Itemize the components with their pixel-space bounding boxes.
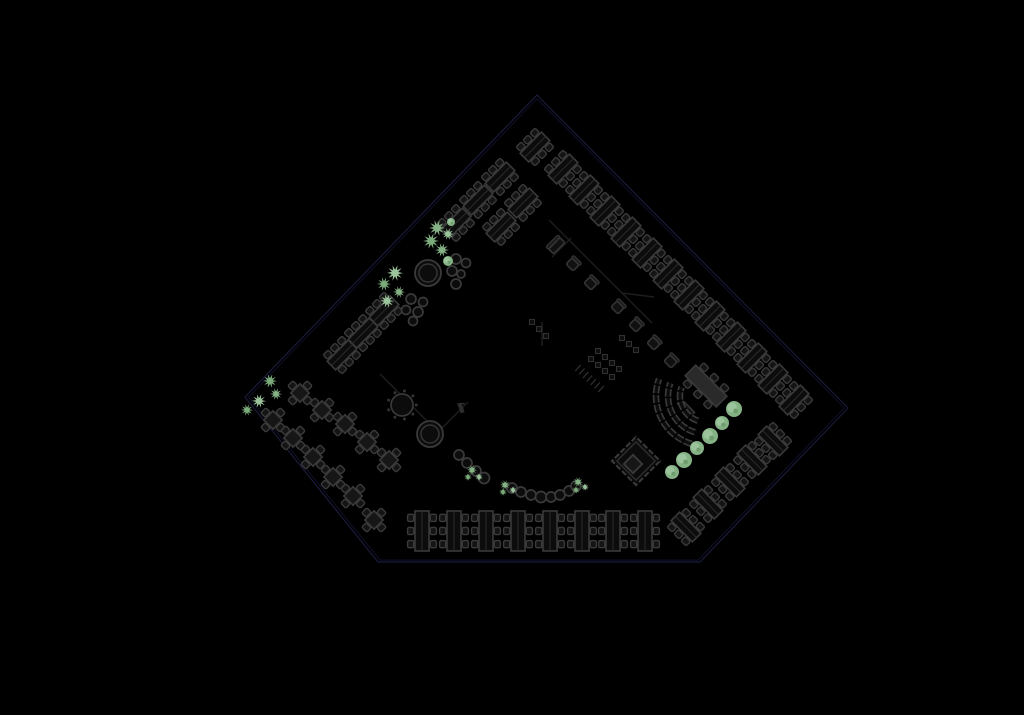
fixture — [530, 320, 535, 325]
lounge-chair — [583, 274, 599, 290]
plant-shrub — [270, 388, 282, 399]
stool — [462, 458, 472, 468]
fixtures — [530, 320, 639, 380]
plant-bush — [676, 452, 692, 468]
stool — [526, 490, 536, 500]
floorplan-viewport — [0, 0, 1024, 715]
round-table — [417, 421, 443, 447]
building-outline — [245, 95, 848, 562]
stool — [536, 492, 547, 503]
plant-shrub — [252, 394, 266, 407]
chair — [653, 541, 659, 548]
stool — [402, 306, 411, 315]
desk-bank-vertical — [504, 511, 533, 551]
stool — [454, 450, 464, 460]
chair — [462, 527, 468, 534]
chair — [440, 541, 446, 548]
chair — [568, 514, 574, 521]
chair — [430, 527, 436, 534]
chair — [631, 514, 637, 521]
chair — [430, 541, 436, 548]
desk-bank-vertical — [408, 511, 437, 551]
round-table — [415, 260, 441, 286]
chair — [536, 514, 542, 521]
chair — [440, 527, 446, 534]
fixture — [610, 375, 615, 380]
chair — [590, 514, 596, 521]
desk-bank — [515, 127, 555, 167]
stair-step — [594, 383, 599, 389]
chair — [494, 514, 500, 521]
chair — [536, 527, 542, 534]
chair — [536, 541, 542, 548]
fixture — [610, 361, 615, 366]
stool — [419, 298, 428, 307]
round-table-dotted — [387, 390, 418, 421]
chair — [408, 541, 414, 548]
plant-shrub — [393, 286, 405, 297]
chair — [653, 527, 659, 534]
sofa — [546, 235, 565, 254]
stair-step — [575, 365, 580, 371]
plant-shrub — [387, 265, 403, 280]
desk-bank-vertical — [568, 511, 597, 551]
chair — [472, 514, 478, 521]
chair — [408, 514, 414, 521]
stool — [457, 270, 465, 278]
fixture — [544, 334, 549, 339]
stool — [413, 307, 423, 317]
plant-shrub — [423, 233, 439, 248]
chair — [621, 527, 627, 534]
plant-bush — [702, 428, 718, 444]
chair — [590, 541, 596, 548]
chair — [504, 527, 510, 534]
stool-arc — [454, 450, 581, 503]
stool — [451, 279, 461, 289]
plant-shrub — [377, 277, 391, 290]
chair — [621, 514, 627, 521]
stair-marks — [575, 365, 603, 392]
chair — [526, 527, 532, 534]
stool-cluster — [402, 294, 428, 326]
chair — [558, 527, 564, 534]
chair — [599, 514, 605, 521]
plant-bush — [665, 465, 679, 479]
chair — [472, 541, 478, 548]
lounge-chair — [610, 298, 626, 314]
chair — [653, 514, 659, 521]
fixture — [596, 349, 601, 354]
desk-bank-vertical — [440, 511, 469, 551]
stool — [462, 259, 471, 268]
stair-step — [591, 379, 596, 385]
fixture — [603, 355, 608, 360]
desk-bank-vertical — [599, 511, 628, 551]
stool — [516, 487, 526, 497]
plant-bush — [715, 416, 729, 430]
chair — [430, 514, 436, 521]
chair — [526, 514, 532, 521]
wall-line — [438, 402, 468, 432]
plant-shrub — [464, 473, 472, 481]
chair — [599, 541, 605, 548]
chair — [526, 541, 532, 548]
plant-shrub — [499, 488, 507, 496]
lounge-chair — [646, 334, 662, 350]
stage-desk — [680, 360, 732, 412]
stool — [409, 317, 418, 326]
chair — [558, 541, 564, 548]
stool — [447, 266, 457, 276]
core-walls — [380, 220, 654, 432]
plant-shrub — [581, 483, 589, 491]
plant-shrub — [241, 404, 253, 415]
fixture — [537, 327, 542, 332]
desk-bank-vertical — [536, 511, 565, 551]
chair — [494, 541, 500, 548]
chair — [568, 541, 574, 548]
pavilion-booth — [612, 437, 660, 485]
stair-step — [583, 372, 588, 378]
desk-bank-vertical — [472, 511, 501, 551]
chair — [568, 527, 574, 534]
plant-bush — [447, 218, 455, 226]
chair — [494, 527, 500, 534]
chair — [504, 514, 510, 521]
chair — [631, 541, 637, 548]
wall-line — [549, 220, 652, 323]
chair — [462, 541, 468, 548]
fixture — [596, 363, 601, 368]
chair — [504, 541, 510, 548]
chair — [462, 514, 468, 521]
fixture — [620, 336, 625, 341]
chair — [631, 527, 637, 534]
lounge-chair — [663, 352, 679, 368]
stool — [406, 294, 416, 304]
chair — [621, 541, 627, 548]
chair — [472, 527, 478, 534]
chair — [558, 514, 564, 521]
fixture — [627, 342, 632, 347]
stair-step — [598, 386, 603, 392]
desk-bank-vertical — [631, 511, 660, 551]
chair — [408, 527, 414, 534]
plant-bush — [443, 256, 453, 266]
chair — [599, 527, 605, 534]
fixture — [634, 348, 639, 353]
floor-plan — [0, 0, 1024, 715]
plant-bush — [690, 441, 704, 455]
lounge-chair — [565, 255, 581, 271]
fixture — [603, 369, 608, 374]
wall-line — [622, 293, 654, 297]
chair — [590, 527, 596, 534]
stair-step — [587, 376, 592, 382]
plant-bush — [726, 401, 742, 417]
fixture — [617, 367, 622, 372]
lounge-chair — [628, 316, 644, 332]
fixture — [589, 357, 594, 362]
chair — [440, 514, 446, 521]
stair-step — [579, 369, 584, 375]
